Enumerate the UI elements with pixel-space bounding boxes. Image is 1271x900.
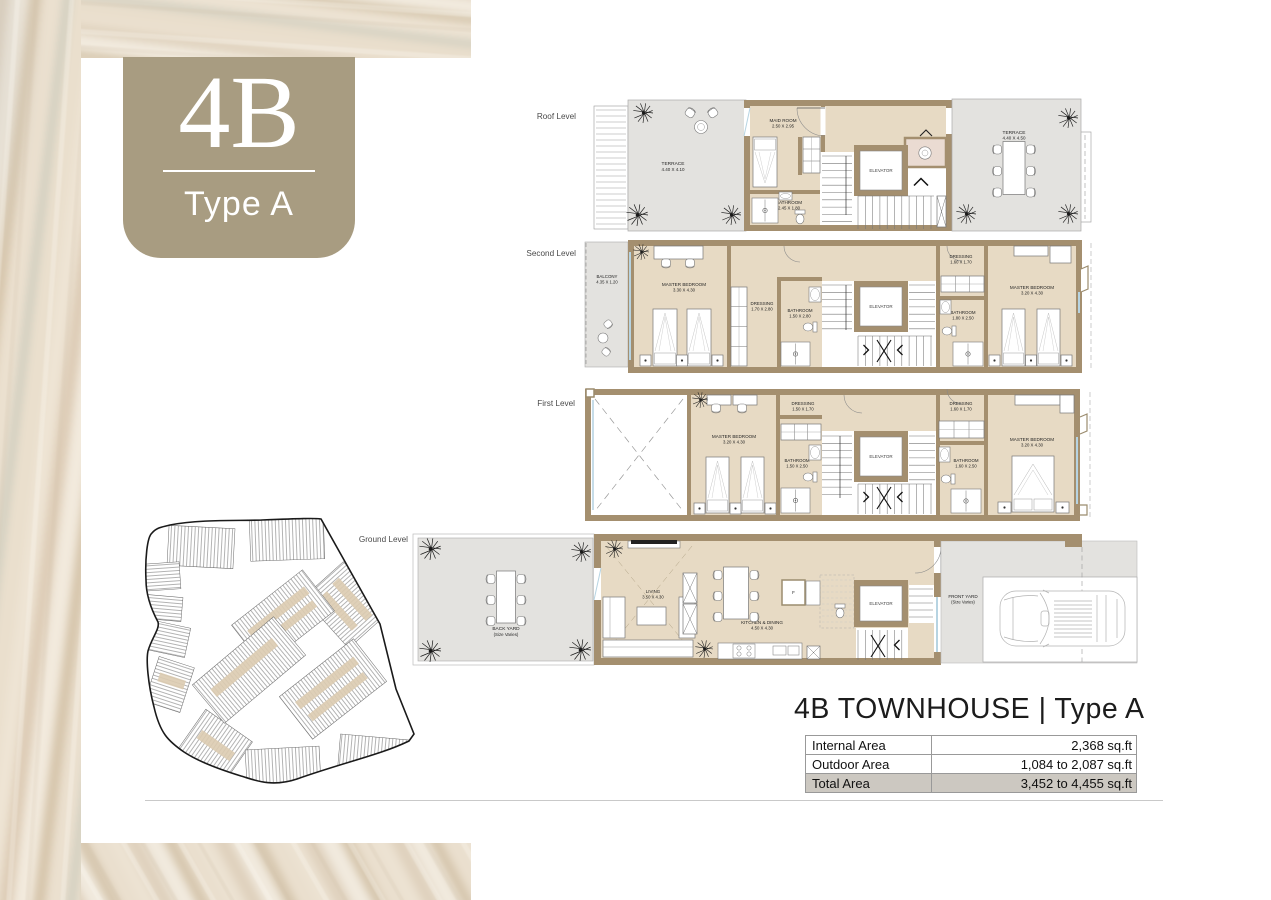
svg-text:ELEVATOR: ELEVATOR — [869, 601, 893, 606]
svg-text:MASTER BEDROOM: MASTER BEDROOM — [662, 282, 706, 287]
svg-text:1.70 X 2.80: 1.70 X 2.80 — [751, 307, 773, 312]
svg-text:DRESSING: DRESSING — [751, 301, 775, 306]
svg-text:1.50 X 1.70: 1.50 X 1.70 — [792, 407, 814, 412]
svg-text:Second Level: Second Level — [526, 249, 576, 258]
svg-text:1.60 X 1.70: 1.60 X 1.70 — [950, 260, 972, 265]
svg-text:DRESSING: DRESSING — [792, 401, 816, 406]
svg-text:BALCONY: BALCONY — [597, 274, 618, 279]
svg-text:BATHROOM: BATHROOM — [787, 308, 812, 313]
svg-text:3.20 X 4.30: 3.20 X 4.30 — [1021, 443, 1044, 448]
svg-text:2.50 X 2.95: 2.50 X 2.95 — [772, 124, 795, 129]
svg-text:KITCHEN & DINING: KITCHEN & DINING — [741, 620, 783, 625]
svg-text:1.60 X 2.50: 1.60 X 2.50 — [955, 464, 977, 469]
svg-text:4.40 X 4.10: 4.40 X 4.10 — [661, 167, 685, 172]
svg-text:LIVING: LIVING — [646, 589, 661, 594]
svg-text:4.35 X 1.20: 4.35 X 1.20 — [596, 280, 618, 285]
svg-text:3.30 X 4.30: 3.30 X 4.30 — [673, 288, 696, 293]
svg-text:First Level: First Level — [537, 399, 575, 408]
svg-text:BATHROOM: BATHROOM — [776, 200, 802, 205]
svg-text:BATHROOM: BATHROOM — [784, 458, 809, 463]
svg-text:ELEVATOR: ELEVATOR — [869, 304, 893, 309]
svg-text:4.40 X 4.50: 4.40 X 4.50 — [1002, 136, 1026, 141]
svg-text:BATHROOM: BATHROOM — [950, 310, 975, 315]
svg-text:BATHROOM: BATHROOM — [953, 458, 978, 463]
svg-text:1.60 X 1.70: 1.60 X 1.70 — [950, 407, 972, 412]
svg-text:MAID ROOM: MAID ROOM — [769, 118, 796, 123]
svg-text:4.50 X 4.30: 4.50 X 4.30 — [751, 626, 774, 631]
svg-text:DRESSING: DRESSING — [950, 401, 974, 406]
svg-text:(Size Varies): (Size Varies) — [494, 632, 519, 637]
svg-text:MASTER BEDROOM: MASTER BEDROOM — [1010, 437, 1054, 442]
svg-text:3.20 X 4.30: 3.20 X 4.30 — [1021, 291, 1044, 296]
svg-text:3.50 X 4.30: 3.50 X 4.30 — [642, 595, 664, 600]
svg-text:3.20 X 4.30: 3.20 X 4.30 — [723, 440, 746, 445]
svg-text:(Size Varies): (Size Varies) — [951, 600, 975, 605]
svg-text:MASTER BEDROOM: MASTER BEDROOM — [1010, 285, 1054, 290]
svg-text:1.50 X 2.80: 1.50 X 2.80 — [789, 314, 811, 319]
svg-text:ELEVATOR: ELEVATOR — [869, 454, 893, 459]
svg-text:1.50 X 2.50: 1.50 X 2.50 — [786, 464, 808, 469]
svg-text:F: F — [792, 590, 795, 595]
svg-text:DRESSING: DRESSING — [950, 254, 974, 259]
svg-text:ELEVATOR: ELEVATOR — [869, 168, 893, 173]
svg-text:Roof Level: Roof Level — [537, 112, 576, 121]
svg-text:FRONT YARD: FRONT YARD — [948, 594, 978, 599]
svg-text:MASTER BEDROOM: MASTER BEDROOM — [712, 434, 756, 439]
svg-text:1.80 X 2.50: 1.80 X 2.50 — [952, 316, 974, 321]
